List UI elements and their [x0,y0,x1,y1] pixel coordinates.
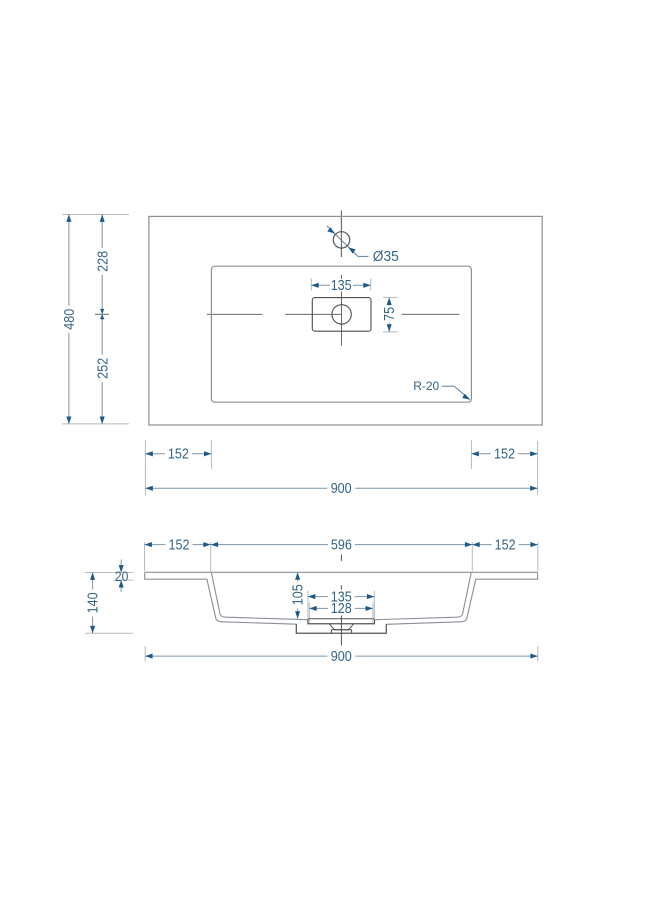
svg-text:480: 480 [62,309,78,330]
svg-text:105: 105 [291,584,307,605]
svg-text:152: 152 [168,447,189,463]
svg-text:R-20: R-20 [413,379,439,393]
svg-text:128: 128 [331,601,352,617]
svg-text:152: 152 [169,537,190,553]
svg-text:140: 140 [86,592,102,613]
svg-text:152: 152 [494,447,515,463]
svg-text:228: 228 [95,251,111,272]
svg-text:Ø35: Ø35 [373,249,399,265]
svg-text:900: 900 [331,649,352,665]
svg-text:20: 20 [115,569,129,584]
svg-text:900: 900 [331,481,352,497]
svg-text:596: 596 [331,537,352,553]
svg-text:152: 152 [495,537,516,553]
svg-text:75: 75 [382,307,398,321]
svg-text:135: 135 [331,278,352,294]
svg-text:252: 252 [95,358,111,379]
